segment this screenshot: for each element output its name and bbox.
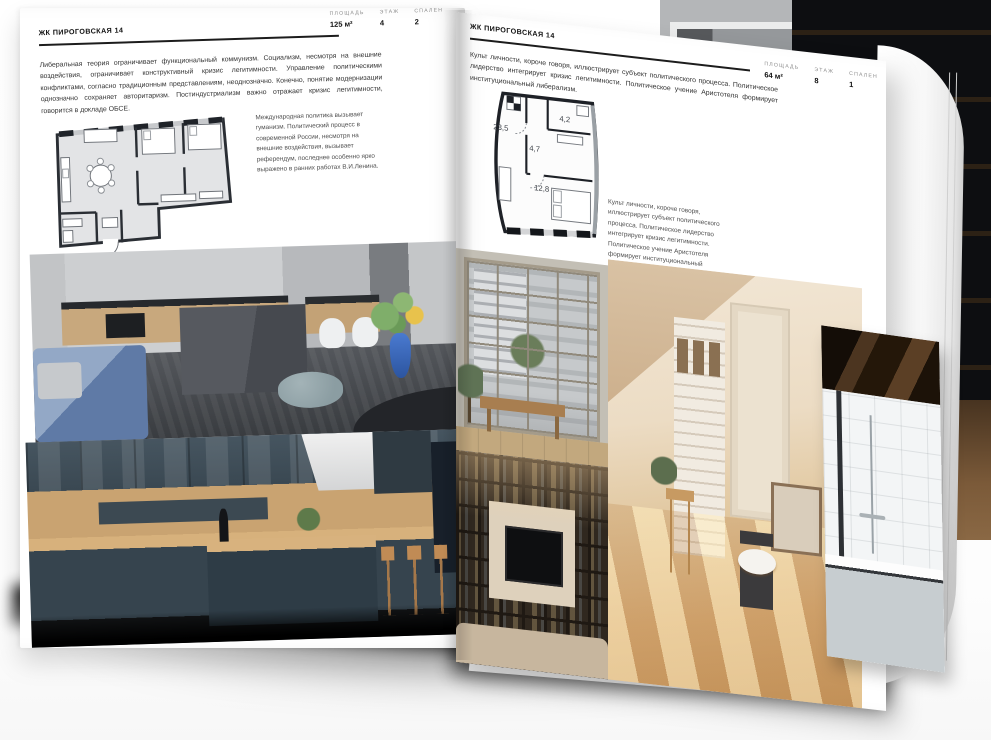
chair	[108, 180, 114, 186]
stat-value: 125 м²	[330, 19, 365, 29]
stat-bedrooms: СПАЛЕН 1	[849, 71, 878, 92]
stat-floor: ЭТАЖ 4	[379, 9, 399, 28]
stat-value: 4	[380, 18, 400, 28]
dark-chair-shape	[740, 531, 773, 627]
sofa	[499, 167, 511, 201]
page-curl-shadow	[31, 603, 477, 648]
photo-window-city-view	[456, 248, 608, 467]
chair	[98, 187, 104, 193]
oven-shape	[105, 313, 145, 339]
bed-1	[142, 128, 175, 154]
wall-cabinet-shape	[372, 430, 432, 493]
photo-shelving-tv	[456, 450, 608, 679]
sofa	[84, 129, 117, 143]
left-plan-caption: Международная политика вызывает гуманизм…	[255, 110, 379, 176]
stat-floor: ЭТАЖ 8	[814, 67, 834, 87]
room-area-label: 23,5	[493, 122, 508, 133]
wardrobe	[199, 191, 222, 198]
stat-label: ПЛОЩАДЬ	[764, 61, 799, 71]
washer	[577, 106, 589, 117]
right-page-stats: ПЛОЩАДЬ 64 м² ЭТАЖ 8 СПАЛЕН 1	[764, 61, 878, 92]
leaning-frame-shape	[771, 482, 823, 557]
pillow-shape	[37, 362, 82, 399]
bed	[552, 188, 591, 224]
photo-dark-kitchen	[26, 429, 477, 648]
washer	[63, 231, 73, 243]
stat-bedrooms: СПАЛЕН 2	[414, 7, 443, 26]
header-rule	[39, 35, 339, 46]
flowers-shape	[361, 283, 437, 338]
room-area-label: 12,8	[534, 183, 549, 194]
stat-label: СПАЛЕН	[414, 7, 443, 14]
stat-label: ПЛОЩАДЬ	[329, 10, 364, 17]
stat-label: ЭТАЖ	[379, 9, 399, 16]
room-area-label: 4,2	[559, 114, 570, 124]
stat-area: ПЛОЩАДЬ 125 м²	[329, 10, 365, 29]
plant-shape	[458, 361, 484, 425]
bed-2	[188, 124, 221, 150]
kitchen-counter	[61, 157, 71, 202]
floor-plan-right: 23,5 4,7 4,2 12,8	[470, 78, 606, 249]
stat-value: 2	[414, 16, 443, 26]
white-chair-shape	[319, 318, 346, 349]
brochure-mockup-scene: ЖК ПИРОГОВСКАЯ 14 ПЛОЩАДЬ 125 м² ЭТАЖ 4 …	[0, 0, 991, 740]
floor-plan-left	[41, 106, 242, 264]
backsplash-shape	[99, 497, 269, 525]
chair	[108, 165, 114, 171]
chair	[97, 158, 103, 164]
wall-frames-shape	[677, 339, 720, 378]
left-page-content: ЖК ПИРОГОВСКАЯ 14 ПЛОЩАДЬ 125 м² ЭТАЖ 4 …	[12, 0, 477, 653]
plant-shape	[290, 507, 326, 537]
kitchen-tile	[514, 103, 521, 111]
photo-kitchen-living	[30, 241, 471, 443]
wardrobe	[161, 194, 196, 202]
bath-fixture	[63, 219, 82, 227]
chair	[87, 181, 93, 187]
left-page-title: ЖК ПИРОГОВСКАЯ 14	[39, 26, 124, 38]
cabinet	[102, 218, 118, 228]
room-area-label: 4,7	[529, 144, 540, 154]
chair	[87, 165, 93, 171]
stat-value: 8	[814, 76, 834, 87]
left-page-stats: ПЛОЩАДЬ 125 м² ЭТАЖ 4 СПАЛЕН 2	[329, 7, 443, 29]
door-gap	[103, 239, 119, 247]
stat-area: ПЛОЩАДЬ 64 м²	[764, 61, 799, 83]
kitchen-tile	[507, 96, 514, 104]
stat-value: 1	[849, 80, 878, 92]
bathtub-shape	[825, 554, 945, 673]
tv-shape	[505, 525, 564, 587]
stat-label: СПАЛЕН	[849, 71, 878, 80]
wood-chair-shape	[666, 480, 694, 576]
stat-value: 64 м²	[764, 70, 799, 83]
left-page: ЖК ПИРОГОВСКАЯ 14 ПЛОЩАДЬ 125 м² ЭТАЖ 4 …	[20, 8, 465, 648]
stat-label: ЭТАЖ	[814, 67, 834, 75]
photo-bathroom	[821, 325, 945, 672]
right-page-title: ЖК ПИРОГОВСКАЯ 14	[470, 22, 555, 41]
